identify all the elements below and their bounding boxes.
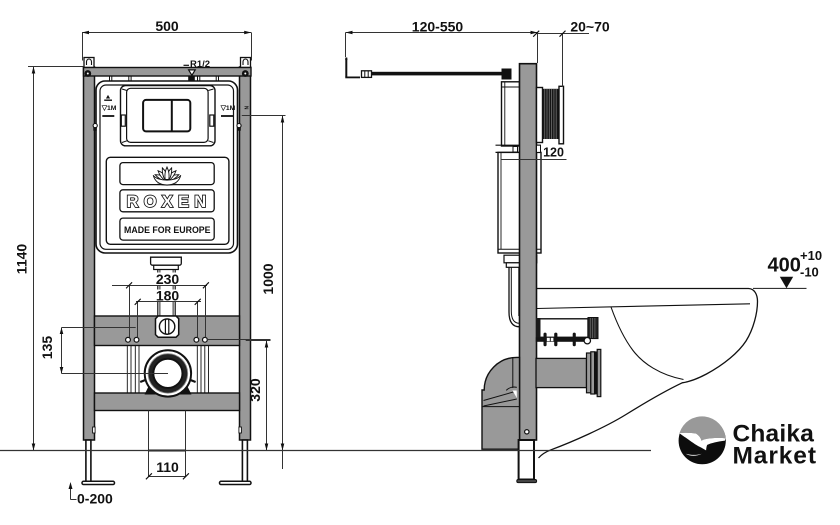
svg-text:+10: +10 (800, 248, 822, 263)
svg-text:▽1M: ▽1M (101, 105, 117, 112)
svg-text:ROXEN: ROXEN (127, 193, 212, 211)
svg-text:1000: 1000 (260, 263, 276, 294)
svg-text:MADE FOR EUROPE: MADE FOR EUROPE (124, 225, 211, 235)
svg-text:120: 120 (543, 146, 564, 160)
svg-text:N: N (244, 106, 250, 110)
svg-text:400: 400 (768, 255, 801, 277)
svg-text:1140: 1140 (14, 244, 30, 275)
svg-text:500: 500 (155, 18, 179, 34)
svg-text:230: 230 (156, 271, 180, 287)
svg-text:Market: Market (733, 442, 817, 469)
svg-text:20~70: 20~70 (570, 19, 610, 35)
svg-text:320: 320 (247, 378, 263, 402)
svg-text:R1/2: R1/2 (190, 59, 210, 70)
svg-text:110: 110 (156, 459, 179, 475)
svg-text:-10: -10 (800, 265, 819, 280)
svg-text:▽1M: ▽1M (220, 105, 236, 112)
svg-text:0-200: 0-200 (77, 491, 113, 507)
svg-text:135: 135 (39, 336, 55, 360)
